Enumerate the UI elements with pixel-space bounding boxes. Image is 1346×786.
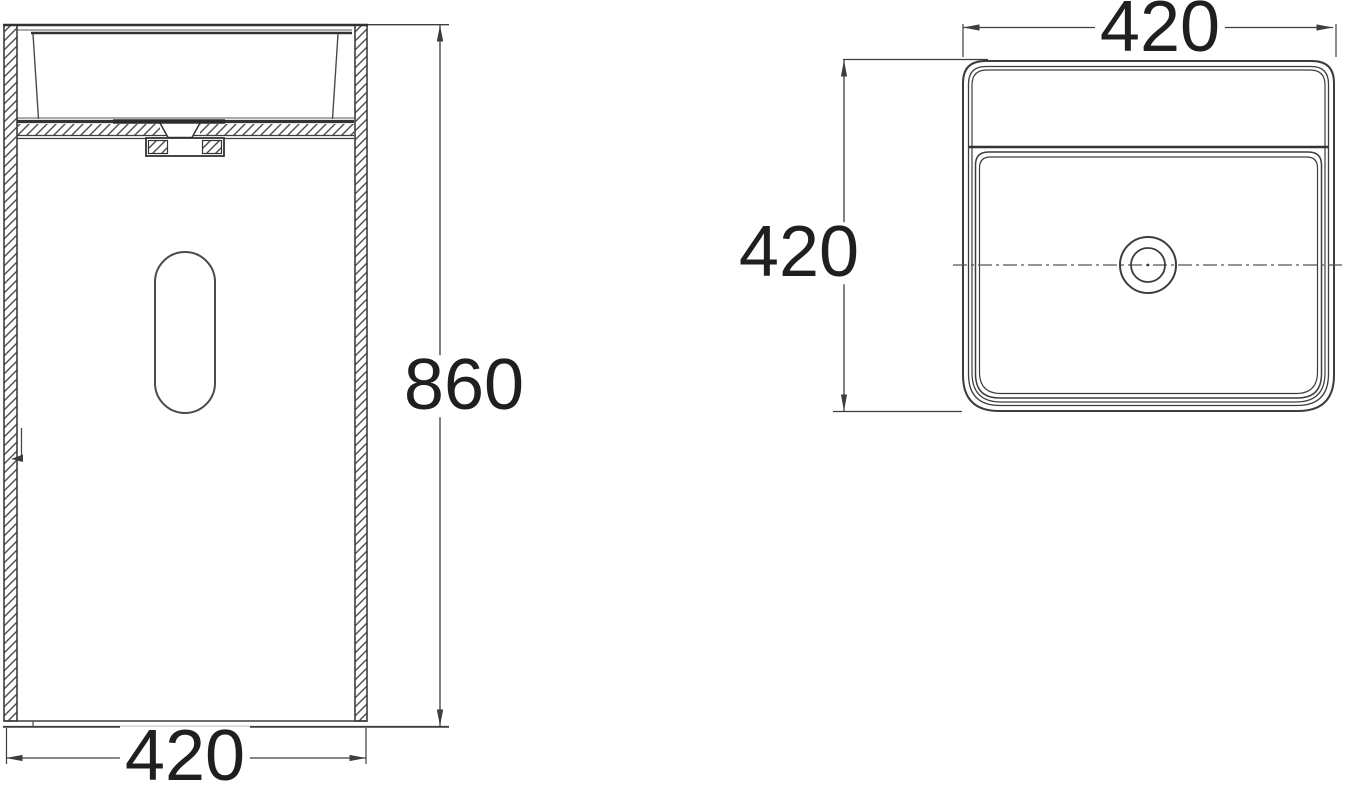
top-bowl-inner-edge [980, 157, 1318, 394]
drain-nut-left-section [149, 141, 168, 154]
arrowhead-left [963, 24, 980, 30]
drain-center-mark [1147, 264, 1150, 267]
arrowhead-down [841, 395, 847, 412]
arrowhead-up [437, 25, 443, 42]
top-outer-profile [963, 61, 1334, 411]
top-rim-line-outer [969, 67, 1329, 406]
arrowhead-up [841, 60, 847, 77]
front-right-wall-section [355, 25, 367, 721]
arrowhead-right [350, 755, 367, 761]
floor-slab-hatch-left [17, 124, 160, 135]
drain-funnel [160, 123, 200, 138]
floor-slab-hatch-right [200, 124, 354, 135]
front-left-wall-section [4, 25, 17, 721]
pedestal-oval-cutout [155, 252, 215, 413]
front-height-dimension-label: 860 [399, 355, 529, 417]
top-width-dimension-label: 420 [1095, 0, 1225, 59]
front-section-view [3, 25, 449, 727]
basin-linework [0, 0, 1346, 786]
top-depth-dimension-label: 420 [734, 222, 864, 284]
arrowhead-left [6, 755, 23, 761]
drawing-canvas: 860 420 420 420 [0, 0, 1346, 786]
bowl-inner-wall-right [333, 34, 339, 119]
arrowhead-right [1317, 24, 1334, 30]
top-plan-view [953, 61, 1346, 411]
drain-nut-right-section [203, 141, 222, 154]
top-rim-line-inner [972, 70, 1325, 402]
arrowhead-down [437, 710, 443, 727]
top-bowl-outer-edge [976, 152, 1322, 398]
bowl-inner-wall-left [33, 34, 39, 119]
front-width-dimension-label: 420 [120, 726, 250, 786]
